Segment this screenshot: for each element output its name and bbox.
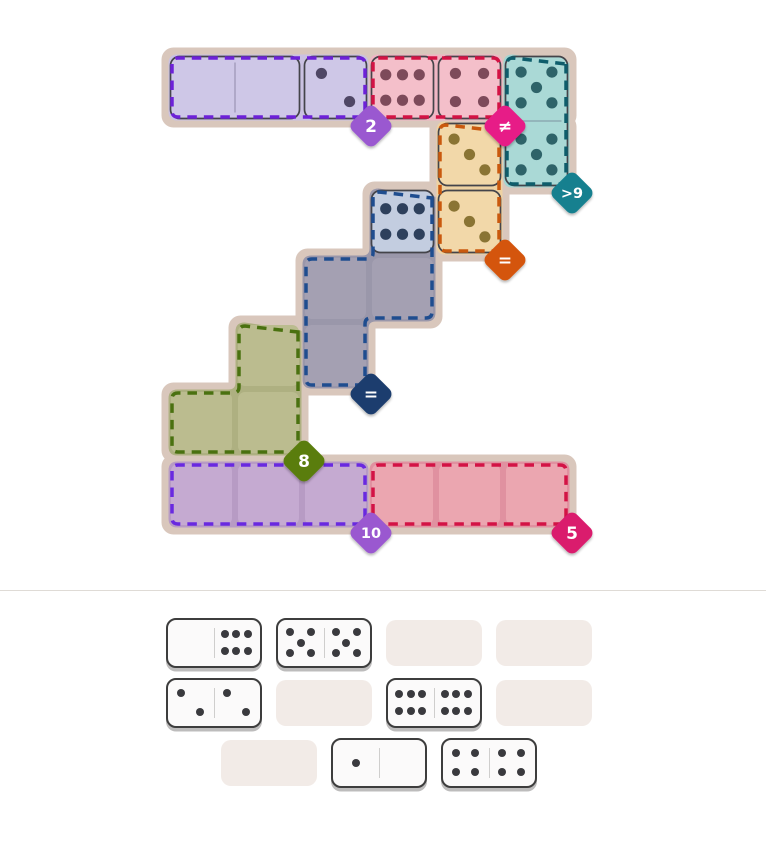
pip — [452, 707, 460, 715]
pip — [448, 200, 459, 211]
placed-domino[interactable] — [171, 57, 300, 119]
pip — [380, 95, 391, 106]
pips-puzzle-page: 2≠>9==8105 — [0, 0, 766, 845]
pip — [478, 68, 489, 79]
pip — [353, 628, 361, 636]
pip — [464, 707, 472, 715]
pip — [471, 768, 479, 776]
board-empty-cell[interactable] — [305, 258, 366, 319]
pip — [515, 164, 526, 175]
pip — [441, 690, 449, 698]
pip — [397, 95, 408, 106]
pip — [332, 628, 340, 636]
pip — [223, 689, 231, 697]
pip — [441, 707, 449, 715]
domino-divider — [379, 748, 381, 778]
pip — [531, 149, 542, 160]
board-empty-cell[interactable] — [238, 464, 299, 525]
pip — [286, 649, 294, 657]
pip — [414, 229, 425, 240]
pip — [452, 749, 460, 757]
pip — [352, 759, 360, 767]
pip — [232, 647, 240, 655]
pip — [498, 749, 506, 757]
badge-label: 5 — [566, 524, 578, 544]
pip — [380, 69, 391, 80]
pip — [414, 95, 425, 106]
domino-divider — [489, 748, 491, 778]
pip — [464, 149, 475, 160]
pip — [196, 708, 204, 716]
pip — [344, 96, 355, 107]
pip — [418, 707, 426, 715]
pip — [546, 164, 557, 175]
pip — [450, 96, 461, 107]
board-empty-cell[interactable] — [372, 464, 433, 525]
pip — [448, 133, 459, 144]
badge-label: = — [498, 251, 512, 271]
tray-slot[interactable] — [496, 620, 592, 666]
pip — [452, 690, 460, 698]
pip — [395, 707, 403, 715]
pip — [479, 231, 490, 242]
tray-domino-2-2[interactable] — [166, 678, 262, 728]
pip — [297, 639, 305, 647]
domino-divider — [214, 688, 216, 718]
pip — [515, 97, 526, 108]
tray-slot[interactable] — [221, 740, 317, 786]
pip — [397, 203, 408, 214]
tray-slot[interactable] — [496, 680, 592, 726]
badge-label: 10 — [361, 526, 381, 542]
domino-divider — [214, 628, 216, 658]
pip — [450, 68, 461, 79]
pip — [177, 689, 185, 697]
pip — [414, 203, 425, 214]
pip — [397, 229, 408, 240]
pip — [471, 749, 479, 757]
pip — [380, 229, 391, 240]
pip — [414, 69, 425, 80]
pip — [407, 707, 415, 715]
board-empty-cell[interactable] — [372, 258, 433, 319]
pip — [464, 216, 475, 227]
board-empty-cell[interactable] — [439, 464, 500, 525]
pip — [407, 690, 415, 698]
pip — [221, 630, 229, 638]
pip — [546, 133, 557, 144]
board-empty-cell[interactable] — [238, 392, 299, 453]
pip — [232, 630, 240, 638]
section-divider — [0, 590, 766, 591]
badge-label: >9 — [561, 186, 583, 202]
pip — [418, 690, 426, 698]
pip — [380, 203, 391, 214]
badge-label: 2 — [365, 117, 377, 137]
domino-divider — [324, 628, 326, 658]
board-empty-cell[interactable] — [171, 392, 232, 453]
board-empty-cell[interactable] — [506, 464, 567, 525]
pip — [478, 96, 489, 107]
badge-label: ≠ — [498, 117, 512, 137]
pip — [531, 82, 542, 93]
pip — [452, 768, 460, 776]
tray-domino-6-6[interactable] — [386, 678, 482, 728]
badge-label: 8 — [298, 452, 310, 472]
pip — [546, 97, 557, 108]
tray-slot[interactable] — [276, 680, 372, 726]
tray-slot[interactable] — [386, 620, 482, 666]
pip — [286, 628, 294, 636]
pip — [242, 708, 250, 716]
pip — [316, 68, 327, 79]
pip — [342, 639, 350, 647]
pip — [397, 69, 408, 80]
pip — [307, 628, 315, 636]
tray-domino-0-6[interactable] — [166, 618, 262, 668]
pip — [353, 649, 361, 657]
pip — [464, 690, 472, 698]
pip — [332, 649, 340, 657]
domino-divider — [434, 688, 436, 718]
board-empty-cell[interactable] — [171, 464, 232, 525]
pip — [498, 768, 506, 776]
tray-domino-1-0[interactable] — [331, 738, 427, 788]
board-empty-cell[interactable] — [238, 325, 299, 386]
tray-domino-4-4[interactable] — [441, 738, 537, 788]
pip — [479, 164, 490, 175]
pip — [244, 647, 252, 655]
pip — [221, 647, 229, 655]
pip — [517, 749, 525, 757]
pip — [515, 66, 526, 77]
pip — [517, 768, 525, 776]
puzzle-board[interactable]: 2≠>9==8105 — [0, 0, 766, 590]
tray-domino-5-5[interactable] — [276, 618, 372, 668]
badge-label: = — [364, 385, 378, 405]
pip — [546, 66, 557, 77]
pip — [244, 630, 252, 638]
pip — [395, 690, 403, 698]
pip — [307, 649, 315, 657]
board-empty-cell[interactable] — [305, 325, 366, 386]
